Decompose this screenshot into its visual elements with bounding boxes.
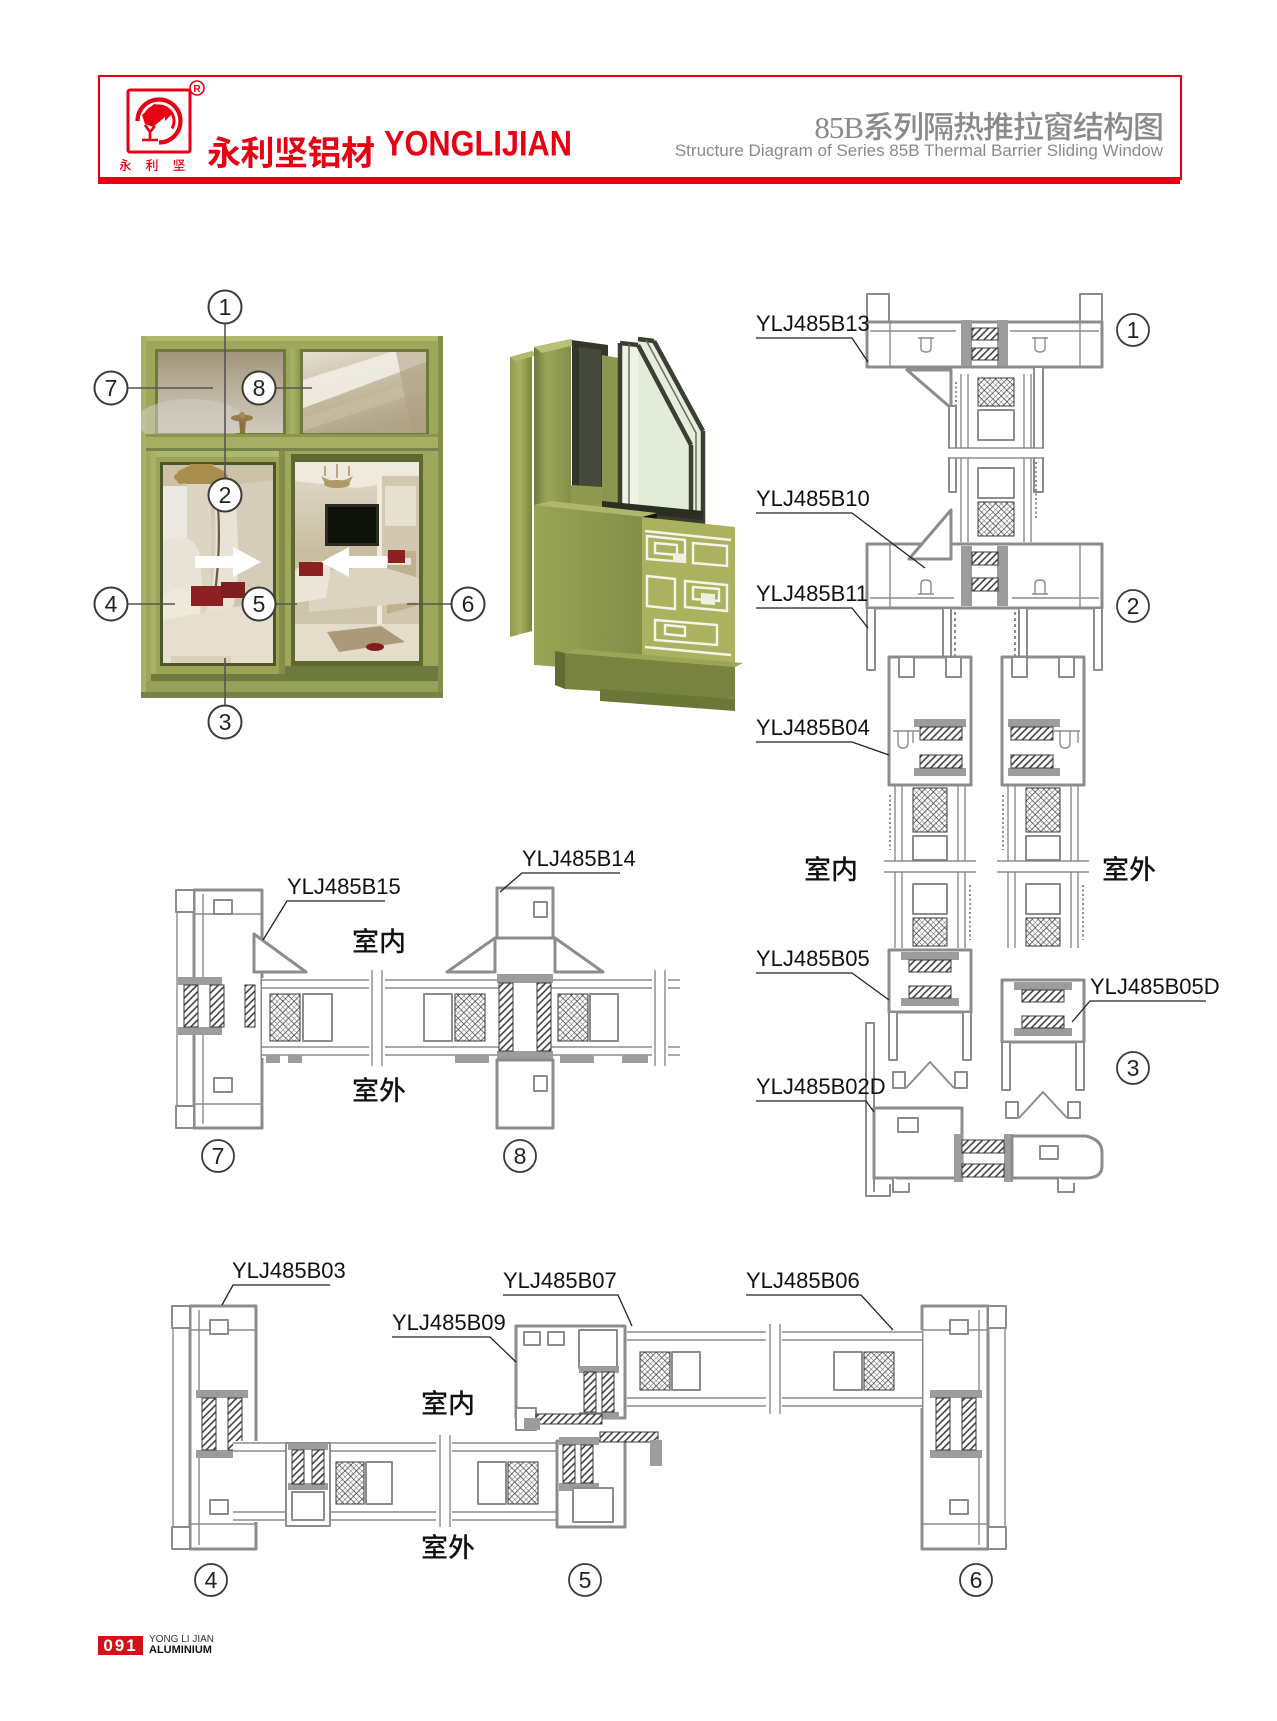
svg-text:1: 1 — [219, 294, 232, 320]
svg-text:6: 6 — [462, 591, 475, 617]
svg-text:YLJ485B10: YLJ485B10 — [756, 486, 870, 511]
svg-text:YLJ485B05: YLJ485B05 — [756, 946, 870, 971]
svg-text:室外: 室外 — [352, 1069, 406, 1108]
svg-text:YLJ485B06: YLJ485B06 — [746, 1268, 860, 1293]
svg-text:7: 7 — [212, 1143, 225, 1169]
svg-text:YLJ485B05D: YLJ485B05D — [1090, 974, 1220, 999]
svg-text:3: 3 — [1127, 1055, 1140, 1081]
svg-text:YLJ485B03: YLJ485B03 — [232, 1258, 346, 1283]
svg-text:5: 5 — [253, 591, 266, 617]
svg-text:1: 1 — [1127, 317, 1140, 343]
svg-text:室外: 室外 — [421, 1526, 475, 1565]
svg-text:4: 4 — [205, 1567, 218, 1593]
svg-text:3: 3 — [219, 709, 232, 735]
svg-text:室内: 室内 — [421, 1382, 475, 1421]
svg-text:室内: 室内 — [804, 848, 858, 887]
svg-text:室内: 室内 — [352, 920, 406, 959]
svg-text:YLJ485B13: YLJ485B13 — [756, 311, 870, 336]
svg-text:6: 6 — [970, 1567, 983, 1593]
svg-text:室外: 室外 — [1102, 848, 1156, 887]
svg-text:YLJ485B04: YLJ485B04 — [756, 715, 870, 740]
svg-text:2: 2 — [1127, 593, 1140, 619]
svg-text:8: 8 — [253, 375, 266, 401]
svg-text:YLJ485B07: YLJ485B07 — [503, 1268, 617, 1293]
svg-text:2: 2 — [219, 482, 232, 508]
svg-text:YLJ485B09: YLJ485B09 — [392, 1310, 506, 1335]
svg-text:YLJ485B11: YLJ485B11 — [756, 581, 868, 606]
svg-text:YLJ485B14: YLJ485B14 — [522, 846, 636, 871]
svg-text:YLJ485B15: YLJ485B15 — [287, 874, 401, 899]
svg-text:7: 7 — [105, 375, 118, 401]
svg-text:5: 5 — [579, 1567, 592, 1593]
svg-text:YLJ485B02D: YLJ485B02D — [756, 1074, 886, 1099]
svg-text:8: 8 — [514, 1143, 527, 1169]
svg-text:4: 4 — [105, 591, 118, 617]
